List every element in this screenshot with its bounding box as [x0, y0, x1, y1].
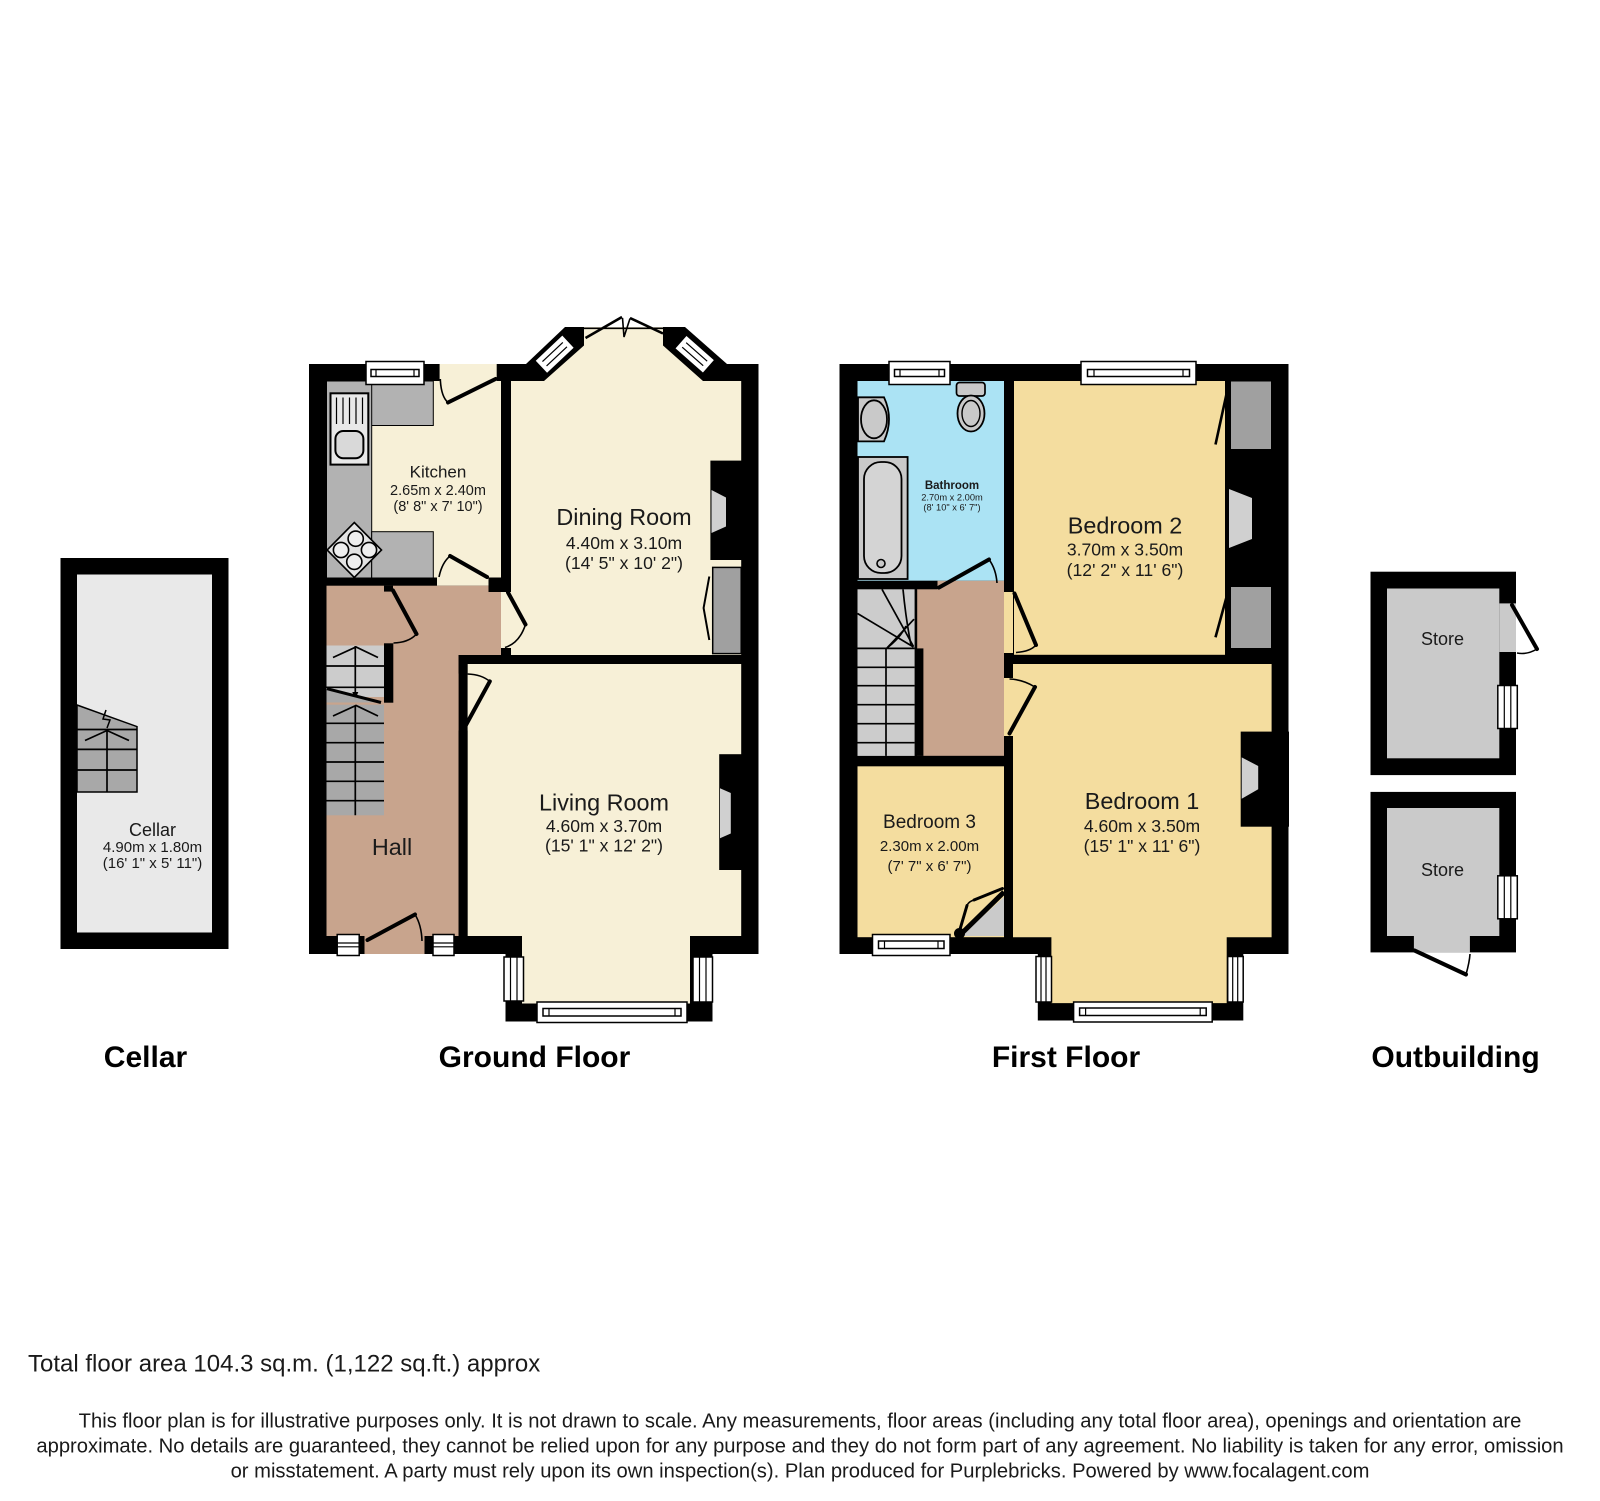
svg-text:or misstatement. A party must: or misstatement. A party must rely upon … [231, 1461, 1370, 1483]
svg-text:Outbuilding: Outbuilding [1371, 1041, 1539, 1074]
svg-text:Dining Room: Dining Room [556, 504, 691, 530]
svg-text:2.70m x 2.00m: 2.70m x 2.00m [921, 493, 983, 503]
svg-text:Living Room: Living Room [539, 790, 669, 816]
svg-text:Bathroom: Bathroom [925, 480, 979, 492]
svg-text:4.60m x 3.50m: 4.60m x 3.50m [1084, 816, 1200, 836]
svg-text:This floor plan is for illustr: This floor plan is for illustrative purp… [79, 1411, 1522, 1433]
svg-text:(8' 10" x 6' 7"): (8' 10" x 6' 7") [923, 503, 980, 513]
svg-text:4.90m x 1.80m: 4.90m x 1.80m [103, 839, 202, 856]
svg-text:(8' 8" x 7' 10"): (8' 8" x 7' 10") [393, 499, 482, 515]
svg-text:Kitchen: Kitchen [410, 463, 467, 482]
svg-text:Bedroom 1: Bedroom 1 [1085, 788, 1199, 814]
svg-text:Store: Store [1421, 860, 1464, 880]
svg-text:2.30m x 2.00m: 2.30m x 2.00m [880, 838, 979, 855]
svg-text:(15' 1" x 11' 6"): (15' 1" x 11' 6") [1084, 836, 1201, 856]
svg-text:(15' 1" x 12' 2"): (15' 1" x 12' 2") [545, 836, 663, 856]
svg-text:Cellar: Cellar [104, 1041, 188, 1074]
svg-text:Bedroom 2: Bedroom 2 [1068, 513, 1182, 539]
svg-text:2.65m x 2.40m: 2.65m x 2.40m [390, 483, 486, 499]
svg-text:Hall: Hall [372, 834, 412, 860]
svg-text:3.70m x 3.50m: 3.70m x 3.50m [1067, 540, 1183, 560]
svg-text:4.40m x 3.10m: 4.40m x 3.10m [566, 533, 682, 553]
svg-text:Bedroom 3: Bedroom 3 [883, 812, 976, 833]
svg-text:Cellar: Cellar [129, 820, 176, 840]
svg-text:Total floor area 104.3 sq.m. (: Total floor area 104.3 sq.m. (1,122 sq.f… [28, 1351, 540, 1378]
svg-text:First Floor: First Floor [992, 1041, 1141, 1074]
svg-text:(16' 1" x 5' 11"): (16' 1" x 5' 11") [103, 855, 202, 872]
svg-text:(7' 7" x 6' 7"): (7' 7" x 6' 7") [888, 858, 972, 875]
svg-text:Ground Floor: Ground Floor [439, 1041, 631, 1074]
svg-text:Store: Store [1421, 629, 1464, 649]
svg-text:approximate. No details are gu: approximate. No details are guaranteed, … [36, 1436, 1563, 1458]
svg-text:(14' 5" x 10' 2"): (14' 5" x 10' 2") [565, 553, 683, 573]
svg-text:(12' 2" x 11' 6"): (12' 2" x 11' 6") [1067, 560, 1184, 580]
svg-text:4.60m x 3.70m: 4.60m x 3.70m [546, 816, 662, 836]
